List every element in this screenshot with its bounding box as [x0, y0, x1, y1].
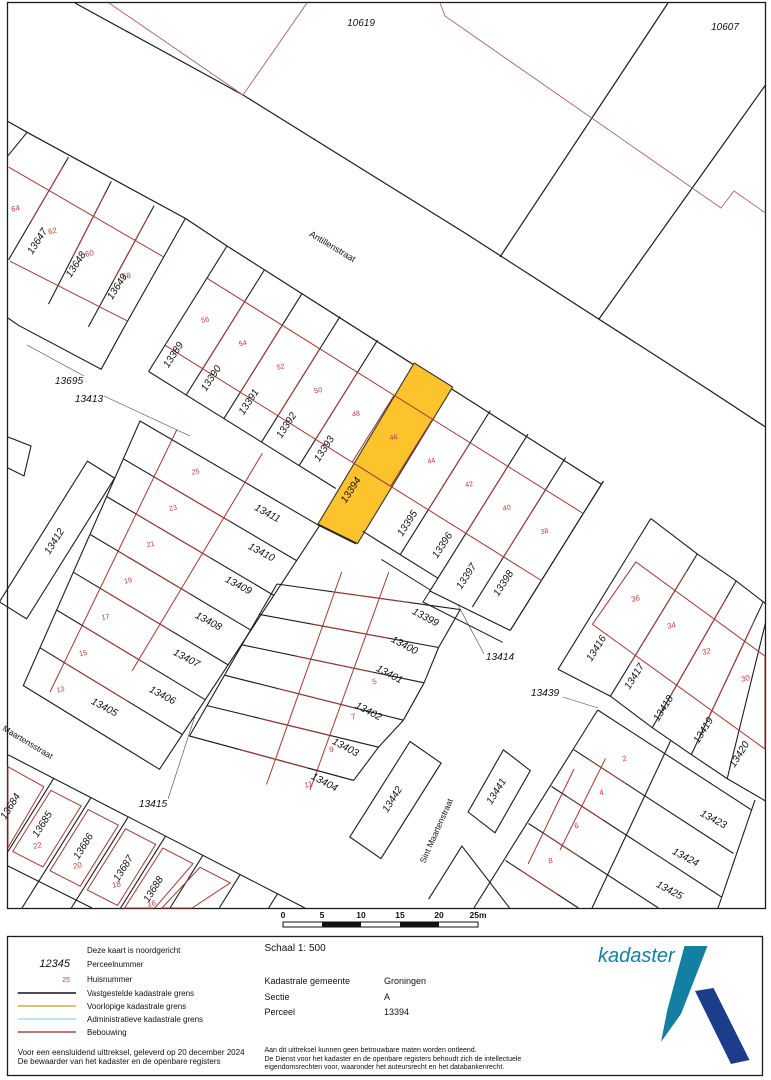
svg-text:Voorlopige kadastrale grens: Voorlopige kadastrale grens [87, 1002, 186, 1011]
svg-text:13414: 13414 [486, 652, 515, 663]
svg-text:Bebouwing: Bebouwing [87, 1028, 127, 1037]
svg-text:Kadastrale gemeente: Kadastrale gemeente [265, 976, 351, 986]
svg-text:Sectie: Sectie [265, 992, 290, 1002]
svg-text:15: 15 [395, 910, 405, 920]
svg-text:eigendomsrechten voor, waarond: eigendomsrechten voor, waaronder het aut… [265, 1064, 505, 1071]
svg-text:De Dienst voor het kadaster en: De Dienst voor het kadaster en de openba… [265, 1056, 522, 1063]
svg-text:Administratieve kadastrale gre: Administratieve kadastrale grens [87, 1015, 203, 1024]
svg-text:13394: 13394 [384, 1007, 409, 1017]
svg-text:Voor een eensluidend uittrekse: Voor een eensluidend uittreksel, gelever… [18, 1048, 245, 1057]
svg-text:10: 10 [356, 910, 366, 920]
svg-text:Huisnummer: Huisnummer [87, 975, 133, 984]
svg-text:25: 25 [62, 977, 70, 984]
svg-text:kadaster: kadaster [598, 945, 676, 967]
svg-text:32: 32 [701, 646, 711, 657]
svg-text:Perceel: Perceel [265, 1007, 296, 1017]
svg-text:13413: 13413 [75, 394, 104, 405]
svg-text:20: 20 [434, 910, 444, 920]
svg-text:10619: 10619 [347, 18, 375, 29]
svg-text:Perceelnummer: Perceelnummer [87, 960, 144, 969]
svg-text:13415: 13415 [139, 799, 168, 810]
svg-text:12345: 12345 [39, 958, 70, 970]
svg-text:Vastgestelde kadastrale grens: Vastgestelde kadastrale grens [87, 989, 194, 998]
svg-text:Groningen: Groningen [384, 976, 426, 986]
svg-text:10607: 10607 [711, 22, 739, 33]
svg-text:13695: 13695 [55, 376, 84, 387]
svg-text:5: 5 [320, 910, 325, 920]
svg-text:36: 36 [630, 593, 640, 604]
svg-text:A: A [384, 992, 390, 1002]
svg-text:Aan dit uittreksel kunnen geen: Aan dit uittreksel kunnen geen betrouwba… [265, 1047, 477, 1054]
svg-text:Schaal 1: 500: Schaal 1: 500 [265, 943, 327, 954]
svg-text:De bewaarder van het kadaster: De bewaarder van het kadaster en de open… [18, 1057, 221, 1066]
svg-text:25m: 25m [469, 910, 486, 920]
svg-text:22: 22 [32, 840, 42, 851]
svg-text:0: 0 [281, 910, 286, 920]
svg-text:13439: 13439 [531, 688, 560, 699]
svg-text:Deze kaart is noordgericht: Deze kaart is noordgericht [87, 946, 181, 955]
